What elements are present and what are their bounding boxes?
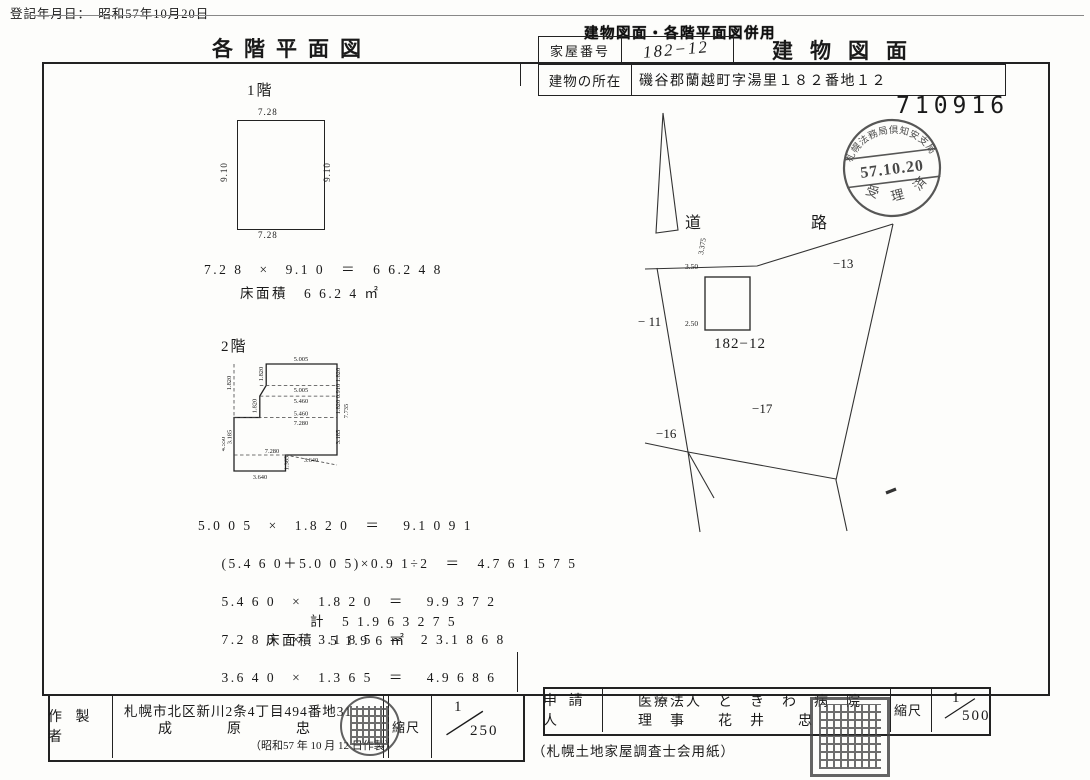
- top-rule: [24, 15, 1084, 16]
- maker-scale-slash: ／: [443, 694, 486, 749]
- frame-top-center-tick: [520, 62, 521, 86]
- road-label: 道 路: [685, 214, 853, 232]
- survey-document-page: 登記年月日： 昭和57年10月20日 各階平面図 建物図面・各階平面図併用 建物…: [0, 0, 1090, 780]
- floor1-dim-top: 7.28: [258, 107, 278, 117]
- f2-dim-bottom: 3.640: [253, 474, 267, 481]
- f2-dim-l4: 3.185: [227, 430, 234, 444]
- maker-address: 札幌市北区新川2条4丁目494番地31: [124, 700, 352, 720]
- house-number-label: 家屋番号: [538, 36, 622, 64]
- f2-dim-notch: 1.365: [284, 456, 291, 470]
- applicant-representative: 理 事 花 井 忠: [638, 710, 814, 730]
- maker-scale-denominator: 250: [470, 723, 499, 740]
- paper-form-note: （札幌土地家屋調査士会用紙）: [532, 740, 735, 760]
- house-number-handwritten: 182−12: [642, 37, 709, 63]
- f2-dim-r1: 1.820: [335, 368, 342, 382]
- floor1-area-calculation: 7.2 8 × 9.1 0 ＝ 6 6.2 4 8: [204, 260, 443, 279]
- maker-seal-stamp: [340, 696, 400, 756]
- applicant-divider-1: [890, 687, 891, 732]
- floor1-outline: [237, 120, 325, 230]
- applicant-scale-fraction: 1 ／ 500: [938, 688, 986, 731]
- f2-dim-m1: 5.005: [294, 387, 308, 394]
- applicant-scale-denominator: 500: [962, 708, 991, 725]
- f2-dim-r3: 1.820: [335, 400, 342, 414]
- applicant-seal-stamp: [810, 697, 890, 777]
- floor2-projection-lines: [234, 364, 337, 465]
- applicant-label: 申 請 人: [543, 687, 603, 732]
- receipt-date-stamp: 札幌法務局倶知安支局 57.10.20 受 理 済: [836, 112, 948, 224]
- f2-calc-line5: 3.6 4 0 × 1.3 6 5 ＝ 4.9 6 8 6: [222, 670, 497, 685]
- stray-mark: [886, 489, 896, 493]
- applicant-divider-2: [931, 687, 932, 732]
- f2-dim-m3: 5.460: [294, 411, 308, 418]
- f2-calc-line3: 5.4 6 0 × 1.8 2 0 ＝ 9.9 3 7 2: [222, 594, 497, 609]
- registration-date: 登記年月日： 昭和57年10月20日: [10, 3, 209, 22]
- f2-dim-m6: 3.640: [304, 457, 318, 464]
- setback-dim-3: 3.375: [696, 237, 708, 255]
- building-footprint: [705, 277, 750, 330]
- f2-dim-r4: 3.185: [335, 430, 342, 444]
- floor2-floor-area: 床面積 5 1.9 6 ㎡: [266, 631, 407, 650]
- floor1-dim-left: 9.10: [219, 162, 229, 182]
- south-boundary: [645, 443, 836, 479]
- applicant-scale-label: 縮尺: [894, 700, 922, 719]
- site-plan-labels: 道 路 −13 − 11 182−12 −17 −16 3.50 2.50 3.…: [638, 214, 853, 441]
- sliver-parcel: [656, 113, 678, 233]
- f2-dim-top: 5.005: [294, 356, 308, 363]
- f2-calc-line2: (5.4 6 0＋5.0 0 5)×0.9 1÷2 ＝ 4.7 6 1 5 7 …: [222, 556, 578, 571]
- floor2-plan-drawing: 5.005 1.820 0.910 1.820 7.735 3.185 1.82…: [222, 353, 372, 488]
- f2-dim-r2: 0.910: [335, 384, 342, 398]
- maker-divider-3: [431, 694, 432, 758]
- parcel-13-label: −13: [833, 256, 853, 271]
- parcel-17-label: −17: [752, 401, 773, 416]
- parcel-11-label: − 11: [638, 314, 661, 329]
- floor2-area-calculations: 5.0 0 5 × 1.8 2 0 ＝ 9.1 0 9 1 (5.4 6 0＋5…: [198, 516, 578, 687]
- f2-dim-l1: 1.820: [258, 367, 265, 381]
- maker-scale-fraction: 1 ／ 250: [440, 697, 520, 755]
- maker-name: 成 原 忠: [158, 718, 319, 738]
- floor2-total: 計 5 1.9 6 3 2 7 5: [310, 612, 457, 631]
- floor1-dim-right: 9.10: [322, 162, 332, 182]
- west-boundary: [657, 268, 700, 532]
- f2-dim-l2: 1.820: [226, 376, 233, 390]
- maker-label: 作 製 者: [48, 694, 113, 758]
- f2-dim-m4: 7.280: [294, 420, 308, 427]
- setback-dim-1: 3.50: [685, 262, 698, 271]
- parcel-16-label: −16: [656, 426, 677, 441]
- floor-plan-title: 各階平面図: [212, 33, 372, 63]
- f2-dim-r-total: 7.735: [343, 404, 350, 418]
- house-number-value: 182−12: [619, 36, 734, 64]
- f2-dim-m2: 5.460: [294, 398, 308, 405]
- building-drawing-title: 建物図面: [772, 35, 924, 65]
- stamp-arc-text: 札幌法務局倶知安支局: [840, 118, 939, 166]
- floor1-floor-area: 床面積 6 6.2 4 ㎡: [240, 284, 381, 303]
- f2-dim-l3: 1.820: [252, 399, 259, 413]
- floor2-dimension-labels: 5.005 1.820 0.910 1.820 7.735 3.185 1.82…: [222, 356, 350, 481]
- f2-calc-line1: 5.0 0 5 × 1.8 2 0 ＝ 9.1 0 9 1: [198, 518, 473, 533]
- svg-text:札幌法務局倶知安支局: 札幌法務局倶知安支局: [840, 118, 939, 166]
- floor1-label: 1階: [247, 79, 274, 100]
- floor1-dim-bottom: 7.28: [258, 230, 278, 240]
- parcel-182-12-label: 182−12: [714, 336, 766, 352]
- f2-dim-m5: 7.280: [265, 448, 279, 455]
- setback-dim-2: 2.50: [685, 319, 698, 328]
